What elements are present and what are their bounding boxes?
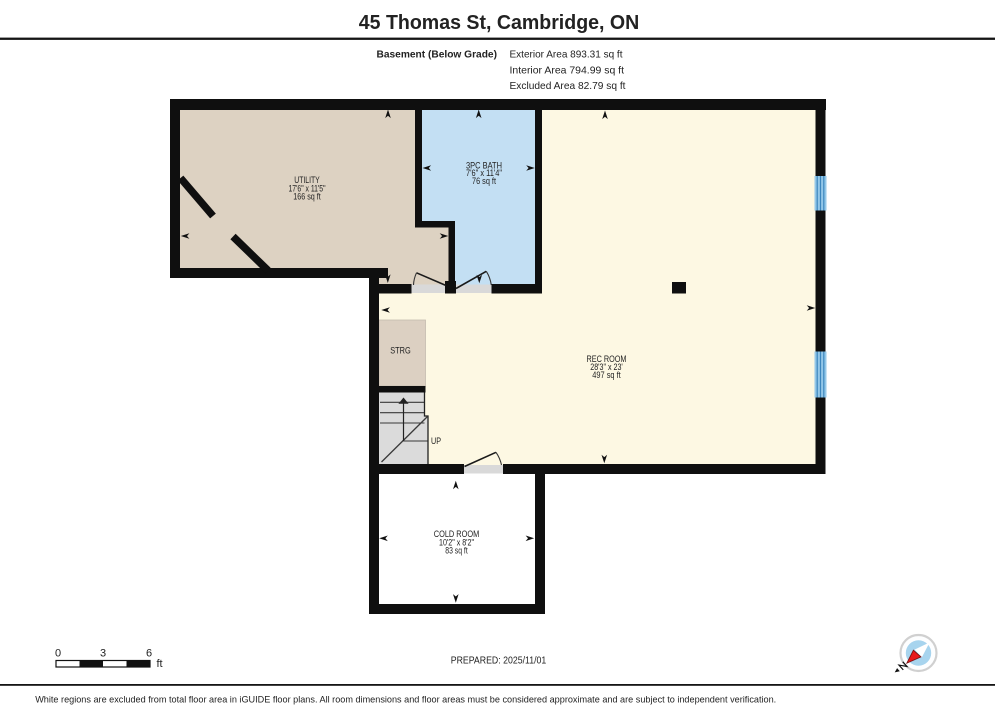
svg-text:0: 0: [55, 648, 61, 660]
svg-text:Excluded Area 82.79 sq ft: Excluded Area 82.79 sq ft: [510, 81, 626, 92]
svg-text:166 sq ft: 166 sq ft: [293, 192, 321, 202]
svg-text:UP: UP: [431, 436, 441, 446]
svg-text:497 sq ft: 497 sq ft: [592, 370, 621, 380]
svg-text:White regions are excluded fro: White regions are excluded from total fl…: [35, 694, 776, 704]
svg-text:3: 3: [100, 648, 106, 660]
svg-text:PREPARED: 2025/11/01: PREPARED: 2025/11/01: [451, 655, 547, 666]
svg-text:45 Thomas St, Cambridge, ON: 45 Thomas St, Cambridge, ON: [359, 12, 640, 34]
svg-text:ft: ft: [157, 658, 163, 670]
svg-text:76 sq ft: 76 sq ft: [472, 176, 496, 186]
svg-text:83 sq ft: 83 sq ft: [445, 546, 468, 556]
svg-text:Basement (Below Grade): Basement (Below Grade): [377, 50, 498, 61]
svg-text:STRG: STRG: [390, 345, 411, 355]
svg-text:Exterior Area 893.31 sq ft: Exterior Area 893.31 sq ft: [510, 50, 623, 61]
svg-text:Interior Area 794.99 sq ft: Interior Area 794.99 sq ft: [510, 65, 625, 76]
svg-text:6: 6: [146, 648, 152, 660]
